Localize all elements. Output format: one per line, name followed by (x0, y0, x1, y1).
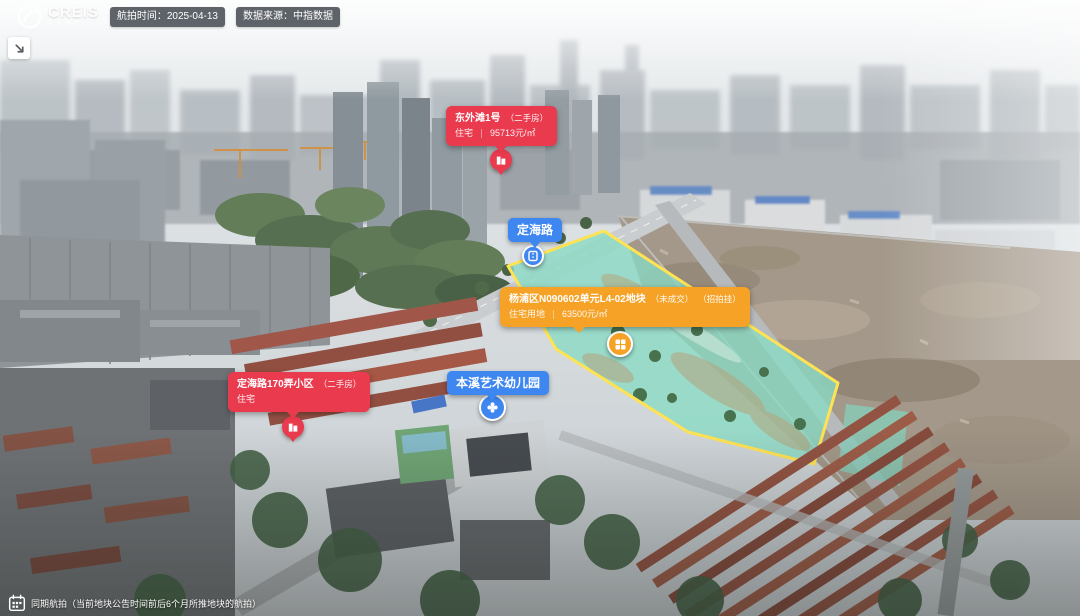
bottom-vignette (0, 430, 1080, 616)
flower-icon (486, 401, 499, 414)
school-name: 本溪艺术幼儿园 (456, 376, 540, 390)
listing-label-dongwaitan[interactable]: 东外滩1号 （二手房） 住宅 95713元/㎡ (446, 106, 557, 146)
parcel-pin[interactable] (607, 331, 633, 357)
shoot-date-badge: 航拍时间：2025-04-13 (110, 7, 225, 27)
listing-pin-dinghai170[interactable] (282, 416, 304, 438)
road-pin-dinghai[interactable] (522, 245, 544, 267)
road-icon (527, 250, 539, 262)
road-label-dinghai[interactable]: 定海路 (508, 218, 562, 242)
parcel-label[interactable]: 杨浦区N090602单元L4-02地块 （未成交） （招拍挂） 住宅用地 635… (500, 287, 750, 327)
building-icon (495, 154, 507, 166)
road-name: 定海路 (517, 223, 553, 237)
creis-logo: CREIS 中指数据 (16, 3, 99, 30)
listing-price: 95713元/㎡ (490, 129, 536, 139)
label-pointer (494, 145, 508, 152)
label-pointer (572, 326, 586, 333)
aerial-photo-viewer: CREIS 中指数据 航拍时间：2025-04-13 数据来源：中指数据 (0, 0, 1080, 616)
creis-logo-icon (16, 3, 43, 30)
arrow-down-right-icon (13, 42, 26, 55)
school-label[interactable]: 本溪艺术幼儿园 (447, 371, 549, 395)
label-pointer (529, 241, 541, 248)
land-grid-icon (614, 338, 627, 351)
divider (553, 310, 554, 319)
brand-name: CREIS (48, 5, 99, 20)
listing-title: 定海路170弄小区 (237, 379, 314, 391)
building-icon (287, 421, 299, 433)
parcel-sale-tag: （招拍挂） (698, 294, 741, 304)
header-bar: CREIS 中指数据 航拍时间：2025-04-13 数据来源：中指数据 (16, 3, 340, 30)
label-pointer (286, 411, 300, 418)
listing-category: 住宅 (237, 395, 255, 405)
listing-label-dinghai170[interactable]: 定海路170弄小区 （二手房） 住宅 (228, 372, 370, 412)
listing-tag: （二手房） (319, 379, 362, 389)
footer-note-text: 同期航拍（当前地块公告时间前后6个月所推地块的航拍） (31, 597, 261, 610)
parcel-category: 住宅用地 (509, 310, 545, 320)
divider (481, 129, 482, 138)
data-source-badge: 数据来源：中指数据 (236, 7, 340, 27)
calendar-icon (8, 594, 26, 612)
parcel-price: 63500元/㎡ (562, 310, 608, 320)
listing-pin-dongwaitan[interactable] (490, 149, 512, 171)
listing-category: 住宅 (455, 129, 473, 139)
listing-title: 东外滩1号 (455, 113, 501, 125)
listing-tag: （二手房） (506, 113, 549, 123)
brand-subtitle: 中指数据 (48, 22, 99, 28)
footer-note: 同期航拍（当前地块公告时间前后6个月所推地块的航拍） (8, 594, 261, 612)
parcel-status-tag: （未成交） (651, 294, 694, 304)
parcel-title: 杨浦区N090602单元L4-02地块 (509, 294, 646, 306)
collapse-panel-button[interactable] (8, 37, 30, 59)
label-pointer (486, 394, 498, 401)
